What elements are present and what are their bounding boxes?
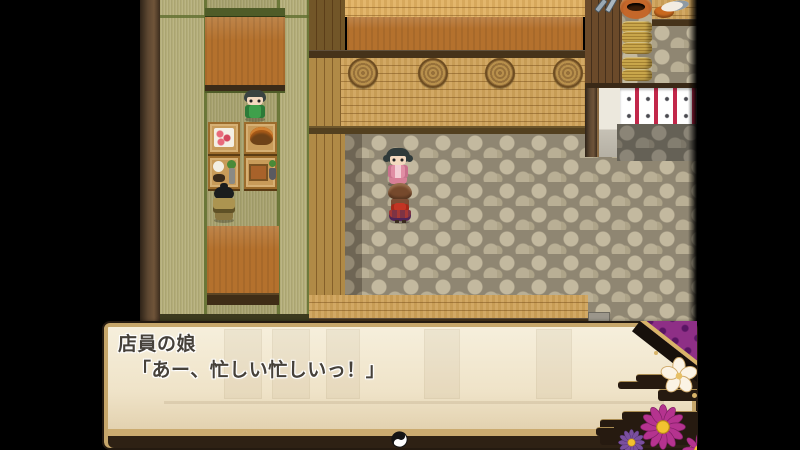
counter-top-edge <box>309 50 590 58</box>
log-medallion <box>348 58 378 88</box>
npc-girl-pink-kimono[interactable] <box>384 148 412 188</box>
counter-base-rim <box>309 126 590 134</box>
left-wall-pillar <box>140 0 160 322</box>
counter-left-column-shadow <box>309 0 345 56</box>
log-medallion <box>485 58 515 88</box>
npc-girl-red-bow-back[interactable] <box>386 183 414 224</box>
npc-clerk-girl-green[interactable] <box>242 90 268 122</box>
basket-stack <box>622 21 652 55</box>
face <box>390 156 406 165</box>
log-medallion <box>418 58 448 88</box>
back-wall-planks <box>345 0 590 17</box>
gray-stone-floor <box>617 124 697 161</box>
window-watermark <box>536 329 572 399</box>
skirt <box>389 210 411 221</box>
cloud-scroll <box>596 427 614 436</box>
lower-left-table <box>207 226 279 305</box>
game-screen[interactable]: 店員の娘 「あー、忙しい忙しいっ！」 <box>0 0 800 450</box>
feet <box>395 220 399 223</box>
cherry-blossom-icon <box>660 357 697 395</box>
basket-stack <box>622 57 652 85</box>
body <box>213 198 235 213</box>
body <box>245 105 265 118</box>
chrysanthemum-icon <box>640 404 686 450</box>
food-table-crate <box>244 156 277 189</box>
log-medallion <box>553 58 583 88</box>
right-cabinet <box>585 0 622 88</box>
chrysanthemum-corner-icon <box>682 433 697 450</box>
bottom-counter <box>309 295 588 318</box>
noren-curtain <box>620 88 697 124</box>
chrysanthemum-small-icon <box>618 429 645 450</box>
counter-top <box>347 17 583 51</box>
npc-patron-topknot[interactable] <box>211 186 237 223</box>
upper-left-table <box>205 8 285 93</box>
map-right-vignette <box>688 0 697 322</box>
dialogue-text: 「あー、忙しい忙しいっ！」 <box>132 355 385 382</box>
food-table-bowl <box>244 122 277 154</box>
speaker-name: 店員の娘 <box>118 329 196 356</box>
wall-pillar <box>585 88 597 157</box>
food-table-sashimi <box>208 122 240 154</box>
kimono-trim <box>395 165 401 178</box>
hair-back <box>388 183 412 200</box>
window-watermark <box>424 329 460 399</box>
feet <box>402 220 406 223</box>
face <box>247 97 263 105</box>
window-watermark-shelf <box>164 401 664 404</box>
pot-opening <box>627 3 645 11</box>
legs <box>215 213 233 220</box>
window-decoration <box>596 321 697 450</box>
gold-dot <box>654 351 658 355</box>
